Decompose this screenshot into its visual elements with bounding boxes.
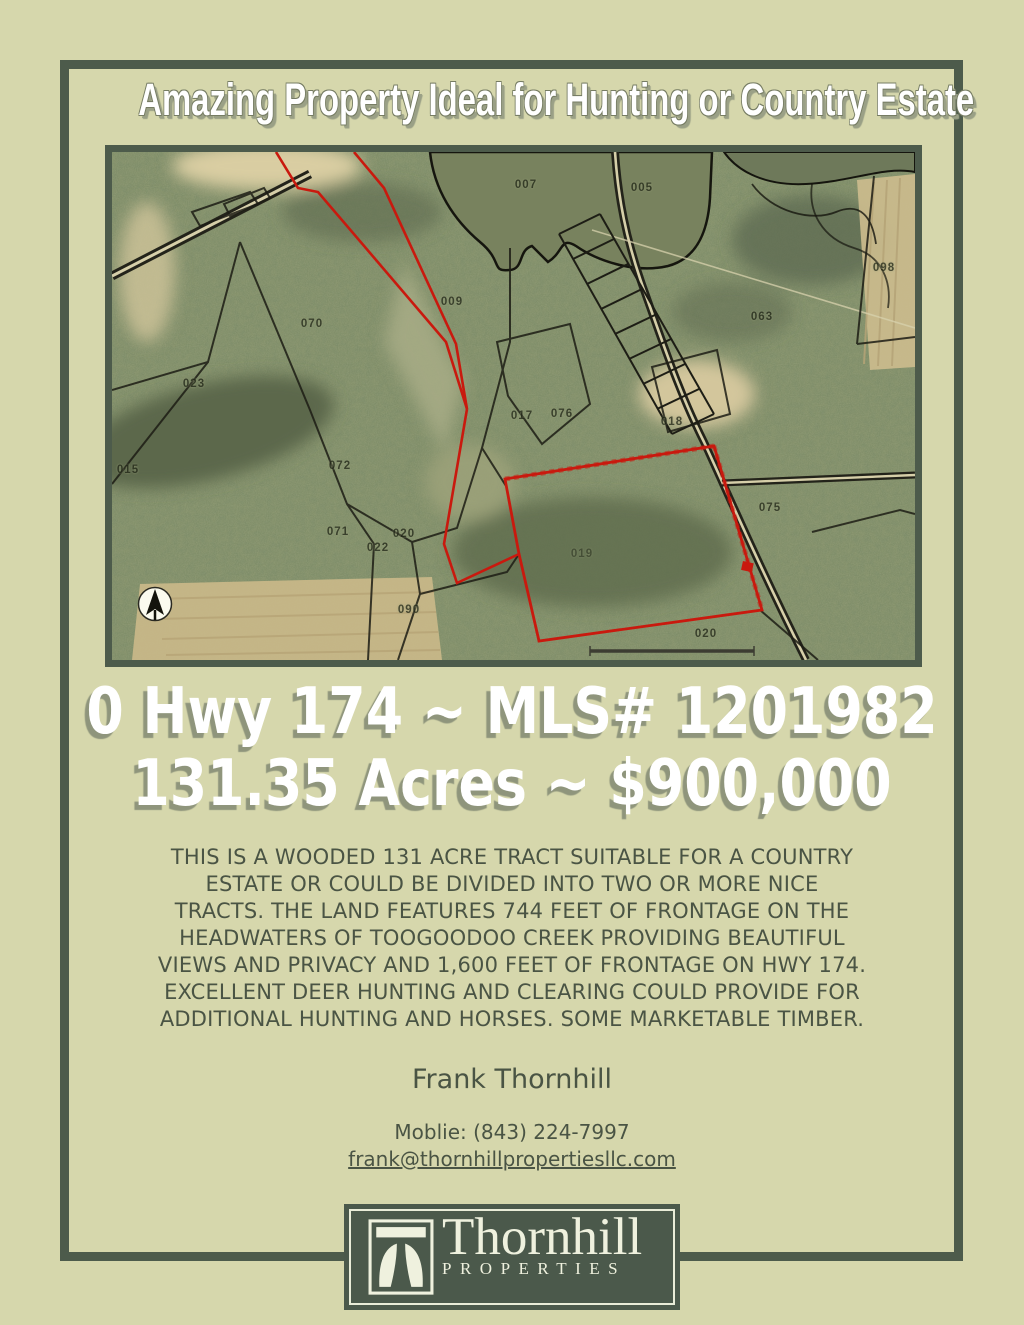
parcel-label: 018 bbox=[661, 416, 683, 428]
acres-price-line: 131.35 Acres ~ $900,000 bbox=[82, 748, 942, 820]
listing-description: THIS IS A WOODED 131 ACRE TRACT SUITABLE… bbox=[82, 844, 942, 1033]
parcel-label: 020 bbox=[393, 528, 415, 540]
agent-name: Frank Thornhill bbox=[0, 1064, 1024, 1095]
parcel-label: 009 bbox=[441, 296, 463, 308]
parcel-label: 020 bbox=[695, 628, 717, 640]
agent-email-link[interactable]: frank@thornhillpropertiesllc.com bbox=[0, 1147, 1024, 1171]
parcel-label: 022 bbox=[367, 542, 389, 554]
agent-phone: Moblie: (843) 224-7997 bbox=[0, 1120, 1024, 1144]
logo-text: Thornhill PROPERTIES bbox=[442, 1210, 642, 1279]
parcel-label: 023 bbox=[183, 378, 205, 390]
logo-subtitle: PROPERTIES bbox=[442, 1259, 642, 1279]
listing-headline: 0 Hwy 174 ~ MLS# 1201982 131.35 Acres ~ … bbox=[82, 676, 942, 820]
parcel-label: 005 bbox=[631, 182, 653, 194]
parcel-labels-layer: 0070050230700090630980150720710200220900… bbox=[112, 152, 915, 660]
parcel-label: 090 bbox=[398, 604, 420, 616]
logo-name: Thornhill bbox=[442, 1210, 642, 1264]
parcel-label: 015 bbox=[117, 464, 139, 476]
aerial-parcel-map: 0070050230700090630980150720710200220900… bbox=[105, 145, 922, 667]
parcel-label: 063 bbox=[751, 311, 773, 323]
thornhill-properties-logo: Thornhill PROPERTIES bbox=[344, 1204, 680, 1310]
parcel-label: 072 bbox=[329, 460, 351, 472]
parcel-label: 070 bbox=[301, 318, 323, 330]
address-mls-line: 0 Hwy 174 ~ MLS# 1201982 bbox=[82, 676, 942, 748]
flyer-title: Amazing Property Ideal for Hunting or Co… bbox=[138, 74, 886, 126]
parcel-label: 075 bbox=[759, 502, 781, 514]
tree-t-logo-icon bbox=[368, 1216, 434, 1298]
parcel-label: 017 bbox=[511, 410, 533, 422]
parcel-label: 071 bbox=[327, 526, 349, 538]
parcel-label: 076 bbox=[551, 408, 573, 420]
parcel-label: 007 bbox=[515, 179, 537, 191]
parcel-label: 019 bbox=[571, 548, 593, 560]
parcel-label: 098 bbox=[873, 262, 895, 274]
